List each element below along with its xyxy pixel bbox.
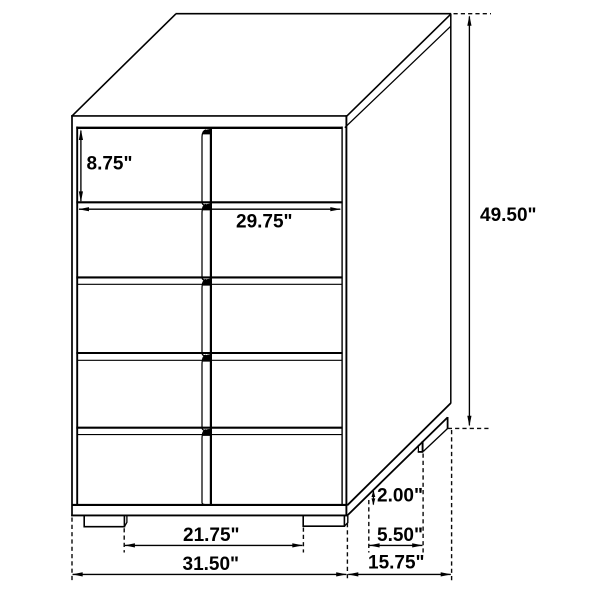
svg-text:5.50": 5.50" bbox=[377, 525, 423, 546]
svg-text:15.75": 15.75" bbox=[368, 553, 425, 574]
svg-text:31.50": 31.50" bbox=[183, 554, 240, 575]
svg-text:2.00": 2.00" bbox=[377, 486, 423, 507]
svg-text:29.75": 29.75" bbox=[236, 212, 293, 233]
svg-text:8.75": 8.75" bbox=[87, 154, 133, 175]
svg-text:49.50": 49.50" bbox=[480, 205, 537, 226]
svg-text:21.75": 21.75" bbox=[183, 525, 240, 546]
